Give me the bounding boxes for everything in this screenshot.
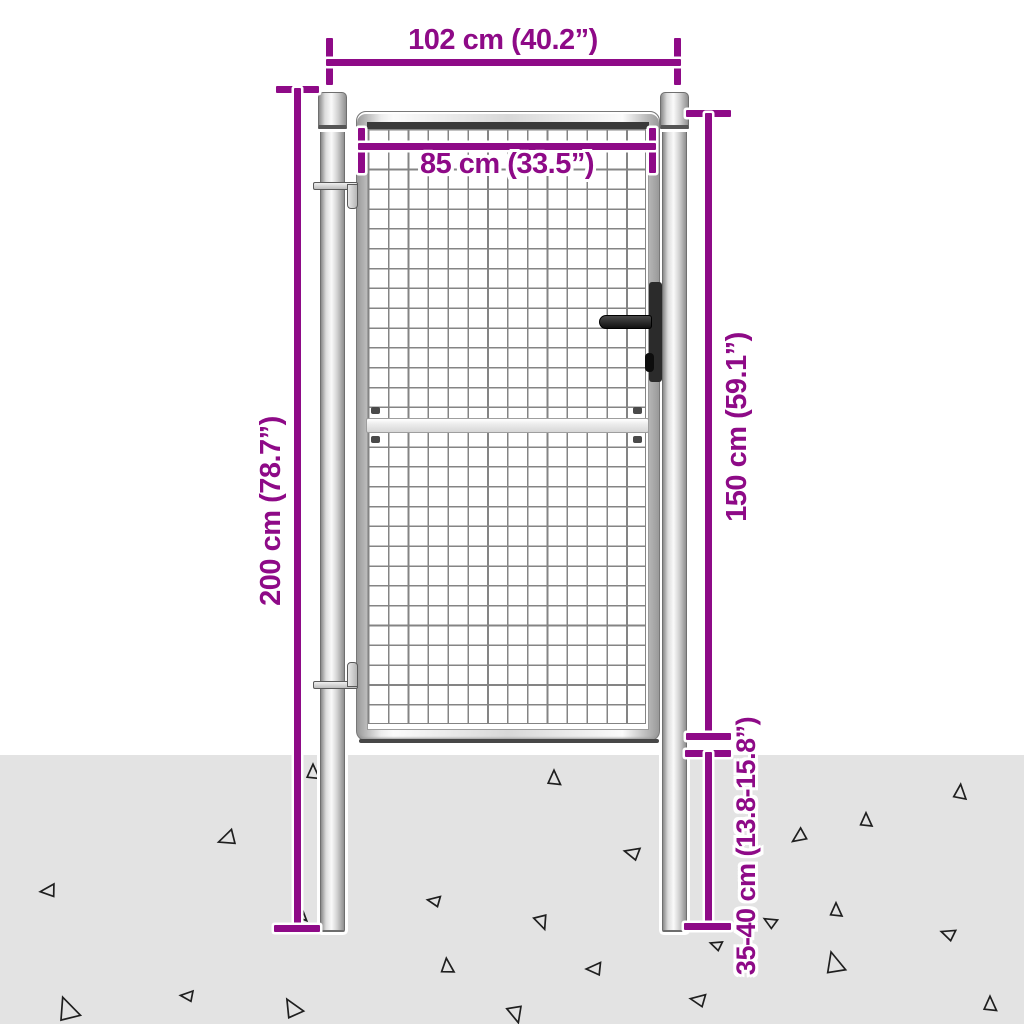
dim-line xyxy=(705,113,712,738)
post-left-tube xyxy=(320,96,345,932)
crossbar-bolt xyxy=(633,407,642,414)
ground-soil-area xyxy=(0,755,1024,1024)
dim-line xyxy=(326,59,681,66)
dim-line xyxy=(705,752,712,929)
dim-cap xyxy=(686,733,731,740)
crossbar-bolt xyxy=(371,407,380,414)
dim-label-total-width: 102 cm (40.2”) xyxy=(303,23,703,57)
post-left-cap xyxy=(318,92,347,129)
dim-label-post-depth: 35-40 cm (13.8-15.8”) xyxy=(726,546,766,1024)
dim-line xyxy=(294,88,301,932)
crossbar-bolt xyxy=(371,436,380,443)
gate-panel-top-shadow xyxy=(367,122,649,129)
keyhole xyxy=(645,353,654,372)
gate-handle xyxy=(599,315,652,329)
dim-cap xyxy=(684,923,731,930)
crossbar-bolt xyxy=(633,436,642,443)
dim-label-total-height: 200 cm (78.7”) xyxy=(251,211,291,811)
gate-frame-bottom-shadow xyxy=(359,739,659,743)
product-diagram: 102 cm (40.2”) 85 cm (33.5”) 200 cm (78.… xyxy=(0,0,1024,1024)
hinge-top-hook xyxy=(347,184,358,209)
dim-label-gate-width: 85 cm (33.5”) xyxy=(307,149,707,179)
post-right-cap xyxy=(660,92,689,129)
dim-cap xyxy=(274,925,320,932)
gate-middle-crossbar xyxy=(366,418,649,433)
hinge-bottom-hook xyxy=(347,662,358,687)
post-right-tube xyxy=(662,96,687,932)
